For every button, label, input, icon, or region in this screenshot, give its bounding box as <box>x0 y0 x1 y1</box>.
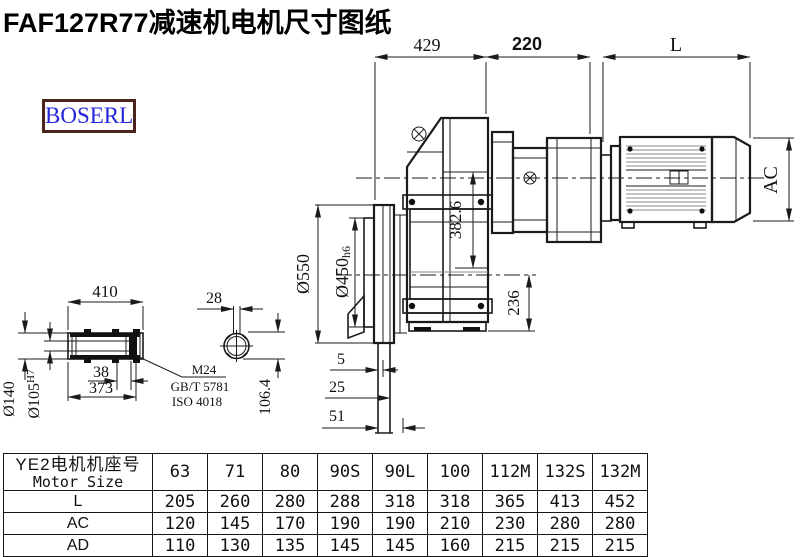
value-cell: 210 <box>428 513 483 535</box>
dim-key-width: 28 <box>206 290 222 307</box>
svg-text:382.6: 382.6 <box>446 201 465 239</box>
column-header: 71 <box>208 454 263 491</box>
table-row: L205260280288318318365413452 <box>4 491 648 513</box>
value-cell: 145 <box>208 513 263 535</box>
table-header-motor-size: YE2电机机座号Motor Size <box>4 454 153 491</box>
bolt-note-size: M24 <box>192 362 217 377</box>
value-cell: 205 <box>153 491 208 513</box>
column-header: 63 <box>153 454 208 491</box>
column-header: 90L <box>373 454 428 491</box>
lifting-screw-icon <box>412 127 426 141</box>
column-header: 80 <box>263 454 318 491</box>
value-cell: 145 <box>318 535 373 557</box>
dim-motor-od: AC <box>753 138 794 221</box>
value-cell: 280 <box>593 513 648 535</box>
column-header: 132S <box>538 454 593 491</box>
centerlines <box>336 178 768 275</box>
motor-size-label-en: Motor Size <box>4 474 152 490</box>
table-row: AC120145170190190210230280280 <box>4 513 648 535</box>
value-cell: 190 <box>318 513 373 535</box>
value-cell: 452 <box>593 491 648 513</box>
dim-shaft-step: 38 <box>93 364 109 381</box>
dim-bore: Ø105H7 <box>25 369 43 419</box>
motor-size-label-cn: YE2电机机座号 <box>4 455 152 474</box>
drawing-page: FAF127R77减速机电机尺寸图纸 BOSERL 429 220 L <box>0 0 800 557</box>
value-cell: 280 <box>538 513 593 535</box>
value-cell: 318 <box>373 491 428 513</box>
dim-gearbox-width: 429 <box>414 35 441 55</box>
svg-text:25: 25 <box>329 379 345 396</box>
dim-base-height: 236 <box>488 275 535 331</box>
bolt-note-iso: ISO 4018 <box>172 394 222 409</box>
row-label: AD <box>4 535 153 557</box>
value-cell: 145 <box>373 535 428 557</box>
value-cell: 365 <box>483 491 538 513</box>
value-cell: 110 <box>153 535 208 557</box>
fan-cover <box>712 137 750 222</box>
hollow-shaft-detail: 410 Ø140 Ø105H7 <box>1 282 229 419</box>
column-header: 112M <box>483 454 538 491</box>
dim-adapter-width: 220 <box>512 34 542 54</box>
bolt-note-gb: GB/T 5781 <box>171 379 230 394</box>
value-cell: 280 <box>263 491 318 513</box>
svg-text:AC: AC <box>760 166 782 194</box>
table-row: AD110130135145145160215215215 <box>4 535 648 557</box>
value-cell: 215 <box>593 535 648 557</box>
motor-size-table: YE2电机机座号Motor Size63718090S90L100112M132… <box>3 453 648 557</box>
dim-shaft-inner: 373 <box>89 380 113 397</box>
value-cell: 260 <box>208 491 263 513</box>
svg-text:236: 236 <box>504 290 523 316</box>
dim-spigot: Ø450h6 <box>332 246 353 298</box>
value-cell: 413 <box>538 491 593 513</box>
dim-hub-od: Ø140 <box>1 381 18 417</box>
value-cell: 160 <box>428 535 483 557</box>
r77-gear-unit <box>492 132 611 242</box>
value-cell: 215 <box>538 535 593 557</box>
column-header: 132M <box>593 454 648 491</box>
value-cell: 170 <box>263 513 318 535</box>
dim-shaft-length: 410 <box>92 282 118 301</box>
row-label: AC <box>4 513 153 535</box>
value-cell: 230 <box>483 513 538 535</box>
value-cell: 288 <box>318 491 373 513</box>
svg-text:5: 5 <box>337 351 345 368</box>
column-header: 90S <box>318 454 373 491</box>
row-label: L <box>4 491 153 513</box>
dim-motor-length: L <box>670 34 682 56</box>
flange-diameter-dimensions: Ø550 Ø450h6 <box>293 205 374 343</box>
value-cell: 130 <box>208 535 263 557</box>
top-dimensions: 429 220 L <box>375 34 750 200</box>
flange-offset-dimensions: 5 25 51 <box>322 351 425 433</box>
motor <box>611 137 750 228</box>
column-header: 100 <box>428 454 483 491</box>
value-cell: 135 <box>263 535 318 557</box>
value-cell: 318 <box>428 491 483 513</box>
table-header-row: YE2电机机座号Motor Size63718090S90L100112M132… <box>4 454 648 491</box>
dim-flange-od: Ø550 <box>293 254 313 294</box>
value-cell: 215 <box>483 535 538 557</box>
value-cell: 190 <box>373 513 428 535</box>
svg-text:51: 51 <box>329 408 345 425</box>
output-flange <box>348 205 407 433</box>
value-cell: 120 <box>153 513 208 535</box>
dim-key-depth: 106.4 <box>257 379 274 415</box>
